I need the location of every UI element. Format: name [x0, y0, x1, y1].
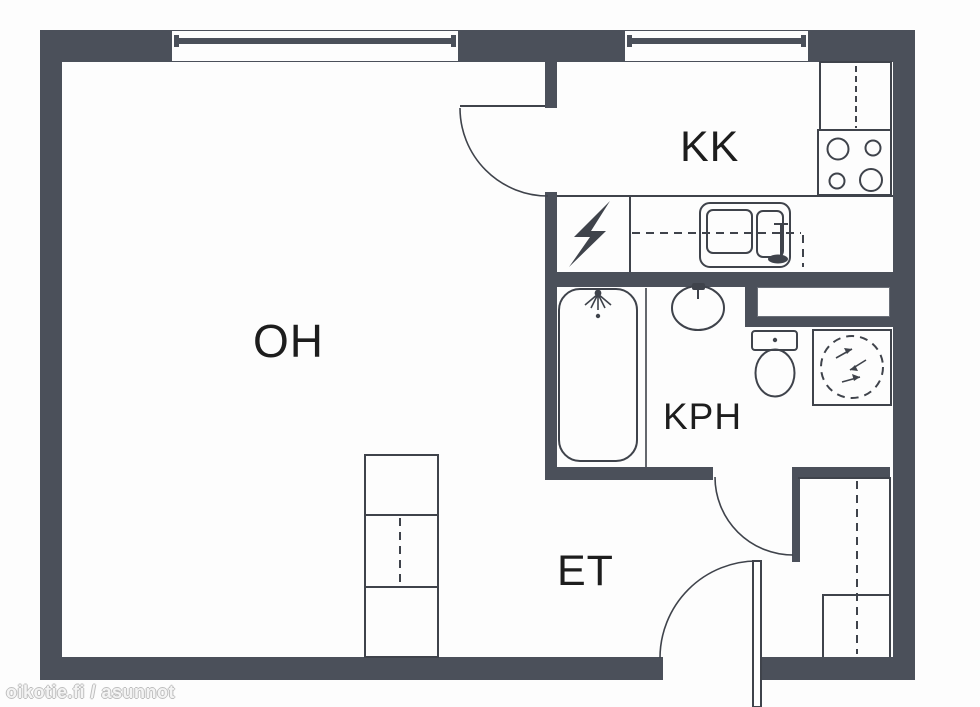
kitchen-sink-icon: [700, 203, 790, 267]
site-watermark: oikotie.fi / asunnot: [6, 682, 175, 703]
floor-plan-image: OH KK KPH ET oikotie.fi / asunnot: [0, 0, 980, 707]
room-label-oh: OH: [253, 318, 324, 364]
fixture-layer: [0, 0, 980, 707]
room-label-kk: KK: [680, 126, 739, 169]
bathroom-door-arc: [715, 477, 793, 555]
washbasin-icon: [672, 283, 724, 330]
kitchen-counter: [557, 196, 893, 272]
room-label-kph: KPH: [663, 398, 742, 435]
kitchen-door-arc: [460, 106, 548, 196]
toilet-icon: [752, 331, 797, 397]
washing-machine-icon: [813, 330, 891, 405]
hall-closet: [798, 478, 890, 657]
room-label-et: ET: [557, 550, 614, 593]
kitchen-upper-cabinet: [820, 62, 891, 130]
entrance-door: [660, 561, 761, 707]
shower-head-icon: [585, 290, 611, 319]
living-room-wardrobe: [365, 455, 438, 657]
stove-icon: [818, 130, 891, 195]
bathtub-icon: [559, 288, 646, 467]
electrical-panel-icon: [569, 201, 610, 267]
